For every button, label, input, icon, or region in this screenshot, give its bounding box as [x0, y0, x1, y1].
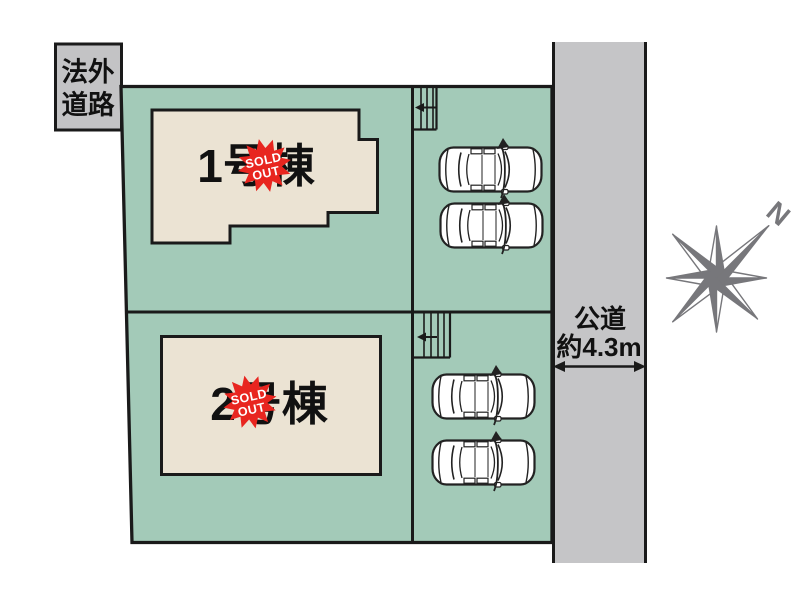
site-plan-diagram: 法外 道路 1号棟 2号棟 SOLD OUT SOLD: [0, 0, 800, 601]
car-icon-4: [433, 438, 535, 487]
offplan-road-box: 法外 道路: [56, 44, 122, 130]
public-road-surface: [552, 42, 647, 563]
public-road-label-line1: 公道: [574, 304, 626, 334]
building-2-label: 2号棟: [210, 378, 329, 430]
site-plan-canvas: 法外 道路 1号棟 2号棟 SOLD OUT SOLD: [0, 0, 800, 601]
compass-north-label: N: [761, 195, 796, 232]
compass-north-icon: N: [667, 195, 797, 332]
car-icon-1: [440, 145, 542, 194]
public-road-label-line2: 約4.3m: [556, 332, 641, 362]
car-icon-3: [433, 372, 535, 421]
public-road: [552, 42, 647, 563]
offplan-road-label-line2: 道路: [62, 90, 115, 120]
offplan-road-label-line1: 法外: [62, 57, 115, 87]
car-icon-2: [441, 201, 543, 250]
